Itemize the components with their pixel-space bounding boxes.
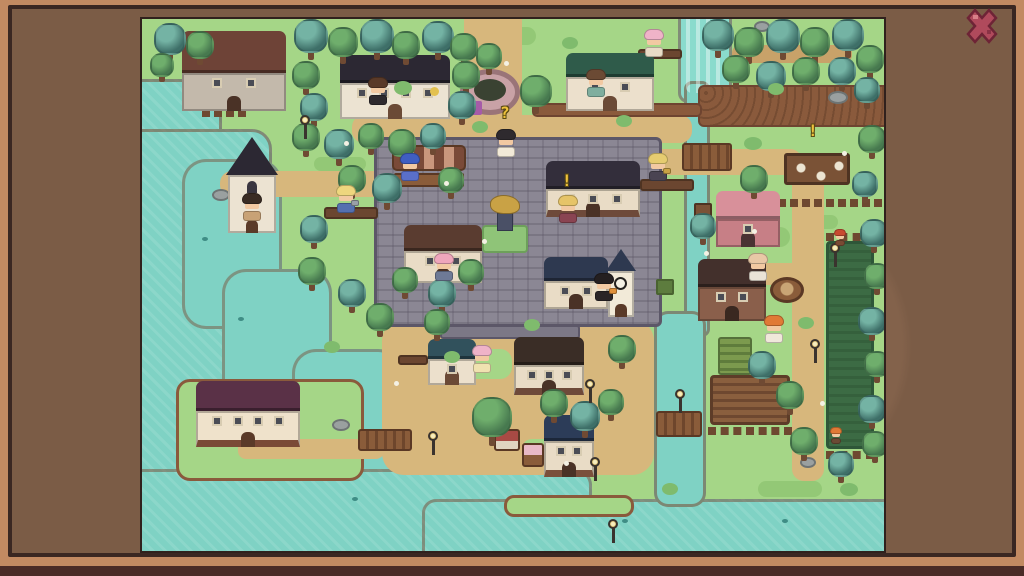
- lamp-post: [608, 519, 618, 543]
- tree-canopy: [300, 215, 328, 243]
- tree-canopy: [828, 451, 854, 477]
- npc-hair: [644, 29, 664, 40]
- flower: [482, 239, 487, 244]
- close-icon: [960, 6, 1004, 46]
- building-door: [586, 202, 600, 217]
- tree-canopy: [392, 267, 418, 293]
- tower-spire: [606, 249, 636, 271]
- tree-stump: [770, 277, 804, 303]
- tree: [520, 75, 552, 115]
- tilled-fence: [708, 427, 792, 435]
- close-button[interactable]: [960, 6, 1004, 46]
- tree: [458, 259, 484, 292]
- tree: [690, 213, 716, 246]
- npc-hair: [764, 315, 784, 326]
- tree-canopy: [740, 165, 768, 193]
- tree: [858, 125, 886, 160]
- tree: [862, 431, 886, 464]
- building-door: [227, 96, 241, 111]
- building-window: [562, 370, 572, 380]
- lamp-light: [300, 115, 310, 125]
- tree-canopy: [852, 171, 878, 197]
- tree-canopy: [328, 27, 358, 57]
- lamp-post: [585, 379, 595, 403]
- npc-fairy[interactable]: [472, 345, 492, 375]
- npc-hair: [594, 273, 614, 284]
- building-window: [544, 370, 554, 380]
- building-window: [253, 416, 263, 426]
- npc-clock-man[interactable]: [594, 273, 614, 303]
- lamp-light: [585, 379, 595, 389]
- tree-canopy: [358, 123, 384, 149]
- tree: [392, 31, 420, 66]
- tree-canopy: [858, 395, 886, 423]
- bottom-islet: [504, 495, 634, 517]
- building-window: [620, 82, 630, 92]
- building-window: [212, 416, 222, 426]
- tree-canopy: [792, 57, 820, 85]
- tree: [150, 53, 174, 83]
- tree-canopy: [294, 19, 328, 53]
- bush: [840, 483, 858, 496]
- tree-canopy: [702, 19, 734, 51]
- flower-stand[interactable]: [522, 443, 544, 467]
- npc-gnome[interactable]: [830, 427, 842, 445]
- tree: [856, 45, 884, 80]
- rock: [332, 419, 350, 431]
- flower: [444, 181, 449, 186]
- building-roof: [404, 225, 482, 251]
- building-door: [741, 232, 755, 247]
- fish: [782, 519, 788, 523]
- tree: [702, 19, 734, 59]
- tree: [328, 27, 358, 65]
- tower-spire: [226, 137, 278, 175]
- tree: [300, 215, 328, 250]
- tree-canopy: [458, 259, 484, 285]
- exclaim-emote: !: [562, 171, 572, 190]
- npc-hair: [830, 427, 842, 434]
- plaza-statue[interactable]: [482, 195, 528, 253]
- tree: [420, 123, 446, 156]
- npc-gnome[interactable]: [834, 229, 846, 247]
- npc-hair: [748, 253, 768, 264]
- building-window: [233, 416, 243, 426]
- building-window: [716, 292, 726, 302]
- npc-body: [765, 333, 783, 343]
- npc-apothecary-man[interactable]: [586, 69, 606, 99]
- bush: [324, 341, 340, 353]
- tree-canopy: [450, 33, 478, 61]
- tree: [722, 55, 750, 90]
- tree: [858, 395, 886, 430]
- tree-canopy: [690, 213, 716, 239]
- lamp-light: [810, 339, 820, 349]
- npc-hair: [336, 185, 356, 196]
- tree: [186, 31, 214, 66]
- tree-canopy: [424, 309, 450, 335]
- npc-hair: [496, 129, 516, 140]
- tree-canopy: [472, 397, 512, 437]
- tree: [776, 381, 804, 416]
- mansion[interactable]: [196, 381, 300, 447]
- building-door: [725, 306, 739, 321]
- tree: [360, 19, 394, 62]
- tree: [472, 397, 512, 447]
- fish: [352, 497, 358, 501]
- npc-body: [749, 271, 767, 281]
- flower: [394, 381, 399, 386]
- bush: [524, 319, 540, 331]
- npc-body: [587, 87, 605, 97]
- npc-monk[interactable]: [368, 77, 388, 107]
- building-window: [212, 78, 222, 88]
- tree: [392, 267, 418, 300]
- flower: [842, 151, 847, 156]
- tree: [740, 165, 768, 200]
- tree-canopy: [722, 55, 750, 83]
- flower: [752, 229, 757, 234]
- bridge-lower[interactable]: [656, 411, 702, 437]
- npc-orange-girl[interactable]: [764, 315, 784, 345]
- apothecary[interactable]: [566, 53, 654, 111]
- npc-hair: [558, 195, 578, 206]
- star-emblem: [430, 87, 439, 96]
- tree-canopy: [150, 53, 174, 77]
- npc-body: [835, 240, 846, 246]
- tree-canopy: [858, 307, 886, 335]
- bush: [616, 115, 632, 127]
- tree-canopy: [862, 431, 886, 457]
- tree-canopy: [800, 27, 830, 57]
- building-window: [447, 364, 457, 374]
- building-window: [560, 286, 570, 296]
- tree: [852, 171, 878, 204]
- grass-patch: [758, 481, 822, 497]
- garden-plot: [656, 279, 674, 295]
- bush: [744, 137, 762, 150]
- tree-canopy: [292, 61, 320, 89]
- tree: [854, 77, 880, 110]
- lamp-post: [590, 457, 600, 481]
- npc-mystic[interactable]: [496, 129, 516, 159]
- bush: [798, 317, 814, 329]
- npc-bard[interactable]: [648, 153, 668, 183]
- bush: [472, 121, 488, 133]
- tree-canopy: [854, 77, 880, 103]
- npc-hair: [834, 229, 846, 236]
- rock: [828, 91, 848, 104]
- tree-canopy: [858, 125, 886, 153]
- tree: [424, 309, 450, 342]
- tree-canopy: [392, 31, 420, 59]
- held-item: [609, 288, 617, 294]
- flower: [704, 251, 709, 256]
- tree-canopy: [298, 257, 326, 285]
- lamp-post: [428, 431, 438, 455]
- tree-canopy: [608, 335, 636, 363]
- lamp-post: [810, 339, 820, 363]
- npc-body: [435, 271, 453, 281]
- tree-canopy: [828, 57, 856, 85]
- tree: [858, 307, 886, 342]
- building-window: [246, 78, 256, 88]
- tree-canopy: [366, 303, 394, 331]
- building-door: [569, 294, 583, 309]
- tree-canopy: [520, 75, 552, 107]
- tree-canopy: [154, 23, 186, 55]
- question-emote: ?: [500, 103, 510, 122]
- bush: [444, 351, 460, 363]
- tree: [598, 389, 624, 422]
- npc-hair: [472, 345, 492, 356]
- tree-canopy: [360, 19, 394, 53]
- tree-canopy: [338, 279, 366, 307]
- tree-canopy: [428, 279, 456, 307]
- npc-hair: [400, 153, 420, 164]
- bush: [562, 37, 578, 49]
- tree: [828, 57, 856, 92]
- npc-hair: [242, 193, 262, 204]
- orchard-plot: [718, 337, 752, 375]
- npc-lone-kid[interactable]: [242, 193, 262, 223]
- tree: [540, 389, 568, 424]
- building-window: [738, 292, 748, 302]
- flower: [564, 461, 569, 466]
- tree-canopy: [448, 91, 476, 119]
- building-window: [582, 286, 592, 296]
- npc-body: [369, 95, 387, 105]
- exclaim-emote: !: [808, 121, 818, 140]
- bush: [394, 81, 412, 95]
- fish: [622, 519, 628, 523]
- npc-merchant-kid[interactable]: [400, 153, 420, 183]
- building-window: [612, 194, 622, 204]
- building-window: [527, 370, 537, 380]
- tree-canopy: [776, 381, 804, 409]
- building-window: [274, 416, 284, 426]
- lamp-light: [590, 457, 600, 467]
- lamp-light: [608, 519, 618, 529]
- bridge-mansion[interactable]: [358, 429, 412, 451]
- tree: [366, 303, 394, 338]
- npc-hammer-kid[interactable]: [336, 185, 356, 215]
- statue-bird: [490, 195, 520, 214]
- building-roof: [514, 337, 584, 365]
- tree: [864, 263, 886, 296]
- frame-bottom-shadow: [0, 566, 1024, 576]
- tree-canopy: [864, 351, 886, 377]
- held-item: [663, 168, 671, 174]
- npc-body: [243, 211, 261, 221]
- building-window: [588, 194, 598, 204]
- tree-canopy: [570, 401, 600, 431]
- tree-canopy: [766, 19, 800, 53]
- tree: [324, 129, 354, 167]
- npc-old-farmer[interactable]: [748, 253, 768, 283]
- bush: [662, 483, 678, 495]
- tree-canopy: [790, 427, 818, 455]
- bush: [768, 83, 784, 95]
- flower: [820, 401, 825, 406]
- npc-body: [831, 438, 842, 444]
- tree-canopy: [540, 389, 568, 417]
- tree-canopy: [864, 263, 886, 289]
- building-roof: [546, 161, 640, 189]
- tree: [338, 279, 366, 314]
- tree: [570, 401, 600, 439]
- tree: [448, 91, 476, 126]
- npc-body: [645, 47, 663, 57]
- lamp-light: [428, 431, 438, 441]
- tree: [294, 19, 328, 62]
- sea: [422, 499, 886, 553]
- building-window: [556, 446, 566, 456]
- tree-canopy: [748, 351, 776, 379]
- npc-hair: [368, 77, 388, 88]
- npc-hair: [434, 253, 454, 264]
- tree-canopy: [734, 27, 764, 57]
- tree: [372, 173, 402, 211]
- npc-reading-girl[interactable]: [644, 29, 664, 59]
- map-viewport[interactable]: ?!!: [140, 17, 886, 553]
- building-door: [388, 104, 402, 119]
- tree: [358, 123, 384, 156]
- building-window: [357, 88, 367, 98]
- flower: [504, 61, 509, 66]
- tree: [864, 351, 886, 384]
- tree-canopy: [420, 123, 446, 149]
- building-door: [241, 432, 255, 447]
- building-roof: [196, 381, 300, 411]
- tree: [790, 427, 818, 462]
- tree: [476, 43, 502, 76]
- npc-pink-clerk[interactable]: [434, 253, 454, 283]
- tree-canopy: [476, 43, 502, 69]
- tree: [298, 257, 326, 292]
- tree: [748, 351, 776, 386]
- fish: [238, 317, 244, 321]
- npc-hair: [648, 153, 668, 164]
- tree: [292, 61, 320, 96]
- tree-canopy: [860, 219, 886, 247]
- tree: [766, 19, 800, 62]
- npc-body: [497, 147, 515, 157]
- tree-canopy: [856, 45, 884, 73]
- tree-canopy: [324, 129, 354, 159]
- statue-pedestal: [497, 213, 513, 231]
- bell-window: [247, 181, 257, 193]
- bench: [398, 355, 428, 365]
- lamp-post: [675, 389, 685, 413]
- bulletin-board[interactable]: [784, 153, 850, 185]
- tree: [828, 451, 854, 484]
- building-window: [572, 446, 582, 456]
- npc-body: [401, 171, 419, 181]
- tree-canopy: [438, 167, 464, 193]
- fish: [202, 237, 208, 241]
- building-roof: [566, 53, 654, 77]
- flower: [344, 141, 349, 146]
- tree: [438, 167, 464, 200]
- bridge-upper[interactable]: [682, 143, 732, 171]
- lamp-post: [300, 115, 310, 139]
- tree-canopy: [598, 389, 624, 415]
- npc-hair: [586, 69, 606, 80]
- npc-inn-girl[interactable]: [558, 195, 578, 225]
- npc-body: [559, 213, 577, 223]
- tree: [792, 57, 820, 92]
- tower-door: [615, 304, 627, 317]
- held-item: [351, 200, 359, 206]
- lamp-light: [675, 389, 685, 399]
- tree: [860, 219, 886, 254]
- tudor-house[interactable]: [514, 337, 584, 395]
- tree-canopy: [186, 31, 214, 59]
- tree-canopy: [372, 173, 402, 203]
- tree: [608, 335, 636, 370]
- npc-body: [473, 363, 491, 373]
